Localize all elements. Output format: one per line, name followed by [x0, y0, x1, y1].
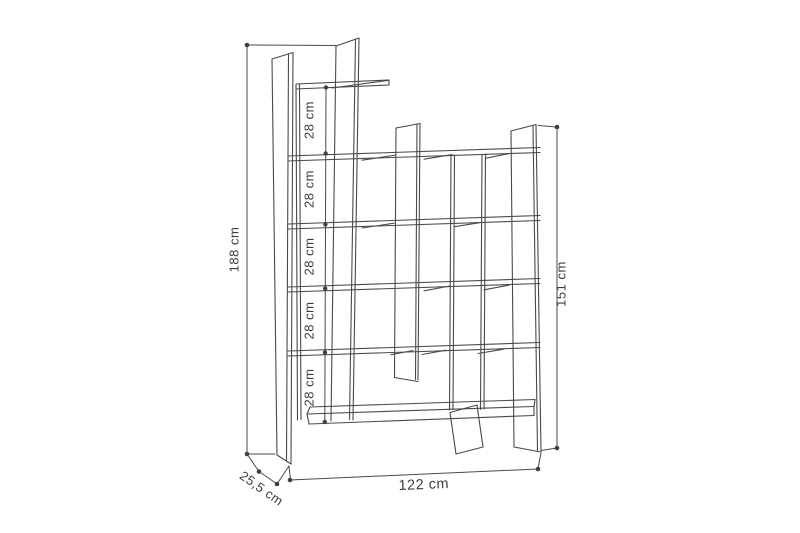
inner-upright-right: [481, 154, 486, 410]
furniture-dimension-diagram: 188 cm 151 cm 122 cm 25,5 cm: [0, 0, 800, 533]
dimension-width: 122 cm: [288, 453, 541, 494]
dimension-endpoint-dot: [555, 446, 560, 451]
inner-upright-left: [296, 85, 301, 421]
shelf-gap-label: 28 cm: [302, 369, 317, 407]
dimension-endpoint-dot: [257, 469, 262, 474]
dimension-endpoint-dot: [323, 350, 327, 354]
dimension-endpoint-dot: [324, 151, 328, 155]
dimension-right-height: 151 cm: [538, 125, 569, 451]
dimension-endpoint-dot: [555, 125, 560, 130]
dimension-depth: 25,5 cm: [237, 454, 289, 509]
width-label: 122 cm: [398, 476, 449, 494]
tall-upright: [331, 38, 359, 421]
shelf-gap-label: 28 cm: [302, 170, 317, 208]
middle-divider: [395, 124, 421, 382]
shelf-gap-label: 28 cm: [302, 302, 317, 340]
shelf-gap-label: 28 cm: [302, 238, 317, 276]
left-side-panel: [272, 53, 293, 465]
dimension-endpoint-dot: [275, 482, 280, 487]
dimension-endpoint-dot: [324, 85, 328, 89]
dimension-endpoint-dot: [536, 467, 541, 472]
depth-label: 25,5 cm: [237, 468, 286, 509]
dimension-shelf-spacing: 28 cm 28 cm 28 cm 28 cm 28 cm: [302, 85, 329, 424]
shelf-gap-label: 28 cm: [302, 101, 317, 139]
bottom-shelf: [307, 400, 535, 425]
total-height-label: 188 cm: [227, 227, 242, 273]
dimension-endpoint-dot: [323, 286, 327, 290]
dimension-endpoint-dot: [288, 478, 293, 483]
right-side-panel: [511, 125, 541, 453]
right-height-label: 151 cm: [554, 261, 569, 307]
dimension-endpoint-dot: [323, 420, 327, 424]
shelf-1: [296, 80, 389, 89]
dimension-endpoint-dot: [323, 222, 327, 226]
dimension-endpoint-dot: [245, 43, 250, 48]
dimension-total-height: 188 cm: [227, 43, 337, 457]
dimension-drawing-canvas: 188 cm 151 cm 122 cm 25,5 cm: [0, 0, 800, 533]
